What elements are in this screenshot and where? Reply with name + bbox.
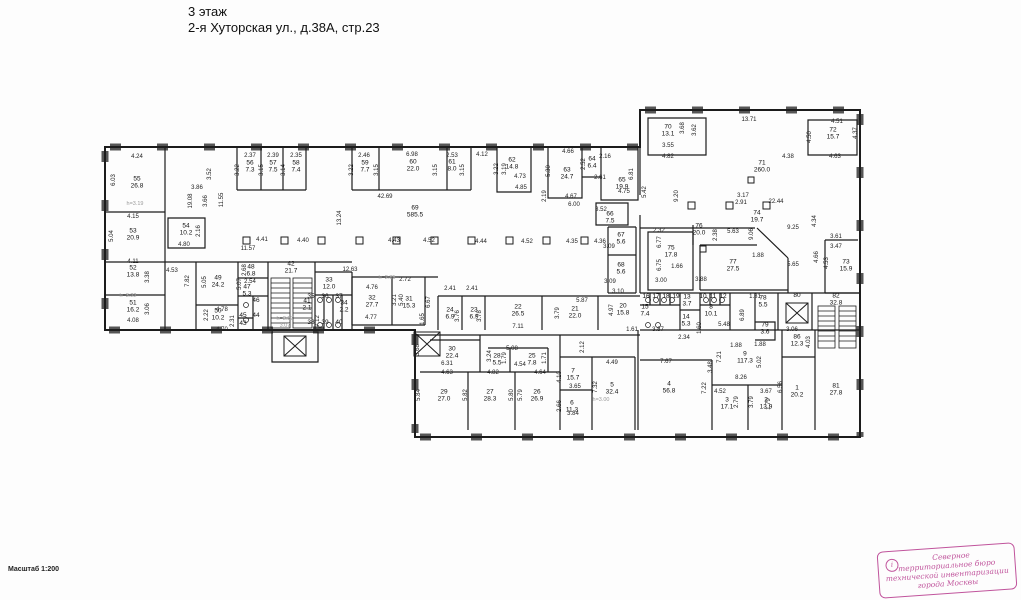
dimension-label: 7.67 (660, 359, 672, 365)
dimension-label: 4.70 (216, 327, 228, 333)
dimension-label: 3.88 (695, 277, 707, 283)
room-label: 35 (307, 294, 314, 301)
dimension-label: 4.85 (515, 185, 527, 191)
room-label: 3227.7 (366, 296, 379, 309)
dimension-label: 4.52 (714, 389, 726, 395)
room-label: 6324.7 (561, 168, 574, 181)
dimension-label: 5.63 (727, 229, 739, 235)
dimension-label: 1.61 (626, 327, 638, 333)
room-label: 5213.8 (127, 266, 140, 279)
dimension-label: 5.42 (642, 186, 648, 198)
dimension-label: 3.22 (349, 164, 355, 176)
dimension-label: 6.67 (426, 296, 432, 308)
room-label: 246.9 (445, 308, 454, 321)
dimension-label: 3.47 (830, 244, 842, 250)
dimension-label: 5.87 (576, 298, 588, 304)
room-label: 3022.4 (446, 347, 459, 360)
room-label: 2728.3 (484, 390, 497, 403)
dimension-label: 4.10 (557, 371, 563, 383)
dimension-label: 2.52 (581, 158, 587, 170)
dimension-label: 4.76 (366, 285, 378, 291)
room-label: 16 (642, 294, 649, 301)
height-note: 3.07 (280, 323, 291, 329)
dimension-label: 2.39 (267, 153, 279, 159)
height-note: h=3.27 (277, 316, 294, 322)
dimension-label: 5.84 (416, 389, 422, 401)
dimension-label: 4.78 (216, 307, 228, 313)
dimension-label: 6.89 (740, 309, 746, 321)
dimension-label: 3.66 (203, 195, 209, 207)
dimension-label: 3.68 (415, 344, 421, 356)
floor-plan-page: 3 этаж 2-я Хуторская ул., д.38А, стр.23 (0, 0, 1021, 600)
room-label: 69585.5 (407, 206, 423, 219)
floor-plan-drawing (0, 0, 1021, 600)
room-label: 12 (719, 294, 726, 301)
room-label: 475.3 (242, 285, 251, 298)
room-label: 9117.3 (737, 352, 753, 365)
room-label: 618.0 (447, 160, 456, 173)
dimension-label: 3.65 (569, 384, 581, 390)
dimension-label: 3.84 (567, 411, 579, 417)
room-label: 2927.0 (438, 390, 451, 403)
dimension-label: 3.87 (652, 327, 664, 333)
dimension-label: 4.77 (365, 315, 377, 321)
dimension-label: 4.53 (166, 268, 178, 274)
room-label: 810.1 (705, 305, 718, 318)
room-label: 412.1 (302, 299, 311, 312)
dimension-label: 4.53 (824, 257, 830, 269)
dimension-label: 2.12 (580, 341, 586, 353)
dimension-label: 2.53 (446, 153, 458, 159)
dimension-label: 5.80 (509, 389, 515, 401)
room-label: 317.1 (721, 398, 734, 411)
dimension-label: 4.43 (388, 238, 400, 244)
room-label: 8612.3 (791, 335, 804, 348)
dimension-label: 1.79 (502, 352, 508, 364)
room-label: 19 (672, 294, 679, 301)
dimension-label: 6.98 (406, 152, 418, 158)
room-label: 36 (321, 294, 328, 301)
room-label: 7215.7 (827, 128, 840, 141)
room-label: 646.4 (587, 157, 596, 170)
dimension-label: 5.30 (546, 165, 552, 177)
dimension-label: 4.38 (782, 154, 794, 160)
dimension-label: 3.62 (692, 124, 698, 136)
room-label: 145.3 (681, 315, 690, 328)
dimension-label: 3.79 (749, 396, 755, 408)
dimension-label: 3.78 (477, 310, 483, 322)
dimension-label: 3.15 (374, 164, 380, 176)
dimension-label: 5.48 (718, 322, 730, 328)
dimension-label: 3.15 (460, 164, 466, 176)
room-label: 17 (652, 294, 659, 301)
dimension-label: 3.00 (655, 278, 667, 284)
dimension-label: 3.79 (555, 307, 561, 319)
height-note: h=3.22 (120, 293, 137, 299)
dimension-label: 4.54 (514, 362, 526, 368)
dimension-label: 5.79 (518, 389, 524, 401)
room-label: 6022.0 (407, 160, 420, 173)
dimension-label: 4.64 (534, 370, 546, 376)
dimension-label: 4.67 (565, 194, 577, 200)
room-label: 7419.7 (751, 211, 764, 224)
bti-stamp: i Северное территориальное бюро техничес… (877, 542, 1018, 599)
room-label: 793.6 (760, 323, 769, 336)
room-label: 597.7 (360, 161, 369, 174)
dimension-label: 4.34 (812, 215, 818, 227)
dimension-label: 3.24 (487, 350, 493, 362)
dimension-label: 3.06 (786, 327, 798, 333)
room-label: 5526.8 (131, 177, 144, 190)
dimension-label: 3.48 (708, 361, 714, 373)
dimension-label: 3.17 (737, 193, 749, 199)
dimension-label: 7.11 (512, 324, 523, 330)
dimension-label: 5.65 (787, 262, 799, 268)
room-label: 157.4 (640, 305, 649, 318)
dimension-label: 4.50 (807, 131, 813, 143)
room-label: 133.7 (682, 295, 691, 308)
room-label: 5320.9 (127, 229, 140, 242)
dimension-label: 1.88 (754, 342, 766, 348)
room-label: 7013.1 (662, 125, 675, 138)
dimension-label: 3.38 (145, 271, 151, 283)
dimension-label: 8.26 (735, 375, 747, 381)
outer-wall (105, 110, 860, 437)
room-label: 46 (252, 298, 259, 305)
dimension-label: 4.73 (514, 174, 526, 180)
dimension-label: 4.75 (618, 189, 630, 195)
dimension-label: 1.79 (766, 398, 772, 410)
dimension-label: 7.22 (702, 382, 708, 394)
dimension-label: 6.31 (441, 361, 453, 367)
dimension-label: 4.03 (806, 336, 812, 348)
dimension-label: 4.35 (566, 239, 578, 245)
dimension-label: 4.44 (475, 239, 487, 245)
room-label: 80 (793, 293, 800, 300)
dimension-label: 4.12 (476, 152, 488, 158)
room-label: 7727.5 (727, 260, 740, 273)
dimension-label: 9.20 (674, 190, 680, 202)
dimension-label: 9.06 (749, 228, 755, 240)
dimension-label: 4.40 (297, 238, 309, 244)
dimension-label: 3.09 (604, 279, 616, 285)
room-label: 577.5 (268, 161, 277, 174)
dimension-label: 1.81 (749, 294, 761, 300)
room-label: 2015.8 (617, 304, 630, 317)
dimension-label: 6.56 (778, 381, 784, 393)
room-label: 43 (239, 321, 246, 328)
dimension-label: 3.10 (612, 289, 624, 295)
dimension-label: 11.57 (241, 246, 256, 252)
dimension-label: 3.15 (433, 164, 439, 176)
dimension-label: 2.22 (204, 309, 210, 321)
room-label: 2122.0 (569, 307, 582, 320)
room-label: 7517.8 (665, 246, 678, 259)
dimension-label: 6.77 (657, 236, 663, 248)
dimension-label: 3.86 (191, 185, 203, 191)
dimension-label: 1.60 (697, 322, 703, 334)
room-label: 7315.9 (840, 260, 853, 273)
dimension-label: 1.88 (730, 343, 742, 349)
dimension-label: 1.71 (542, 352, 548, 364)
dimension-label: 2.41 (444, 286, 456, 292)
room-label: 18 (662, 294, 669, 301)
room-label: 5410.2 (180, 224, 193, 237)
dimension-label: 4.52 (423, 238, 435, 244)
dimension-label: 5.82 (463, 389, 469, 401)
dimension-label: 3.61 (830, 234, 842, 240)
dimension-label: 4.11 (127, 259, 138, 265)
room-label: 39 (321, 320, 328, 327)
room-label: 342.2 (339, 301, 348, 314)
height-note: h=3.19 (127, 201, 144, 207)
dimension-label: 4.15 (127, 214, 139, 220)
dimension-label: 4.37 (853, 127, 859, 139)
room-label: 285.5 (492, 354, 501, 367)
dimension-label: 13.71 (741, 117, 756, 123)
dimension-label: 2.72 (399, 277, 411, 283)
stairs-82 (818, 306, 856, 348)
dimension-label: 4.52 (521, 239, 533, 245)
dimension-label: 1.66 (671, 264, 683, 270)
dimension-label: 3.06 (145, 303, 151, 315)
dimension-label: 2.31 (230, 315, 236, 327)
room-label: 8127.8 (830, 384, 843, 397)
dimension-label: 7.12 (315, 315, 321, 327)
dimension-label: 19.08 (188, 193, 194, 208)
dimension-label: 4.63 (829, 154, 841, 160)
dimension-label: 1.65 (420, 313, 426, 325)
dimension-label: 2.19 (542, 190, 548, 202)
dimension-label: 4.63 (441, 370, 453, 376)
room-label: 257.8 (527, 354, 536, 367)
dimension-label: 2.41 (466, 286, 478, 292)
dimension-label: 7.32 (593, 381, 599, 393)
dimension-label: 2.38 (713, 229, 719, 241)
room-label: 3312.0 (323, 278, 336, 291)
dimension-label: 2.54 (244, 279, 256, 285)
room-label: 8232.8 (830, 294, 843, 307)
dimension-label: 4.97 (609, 304, 615, 316)
dimension-label: 5.04 (109, 230, 115, 242)
dimension-label: 3.55 (662, 143, 674, 149)
dimension-label: 3.14 (281, 164, 287, 176)
room-label: 37 (335, 294, 342, 301)
room-label: 456.8 (663, 382, 676, 395)
dimension-label: 6.03 (111, 174, 117, 186)
dimension-label: 4.82 (487, 370, 499, 376)
dimension-label: 3.19 (502, 163, 508, 175)
dimension-label: 2.91 (735, 200, 747, 206)
room-label: 4221.7 (285, 262, 298, 275)
room-label: 11 (710, 294, 717, 301)
room-label: 10 (699, 294, 706, 301)
dimension-label: 2.16 (196, 225, 202, 237)
dimension-label: 3.21 (392, 294, 398, 306)
dimension-label: 3.09 (603, 244, 615, 250)
scale-note: Масштаб 1:200 (8, 566, 59, 573)
room-label: 120.2 (791, 386, 804, 399)
room-label: 532.4 (606, 383, 619, 396)
room-label: 71260.0 (754, 161, 770, 174)
dimension-label: 3.76 (455, 310, 461, 322)
height-note: h=3.00 (593, 397, 610, 403)
dimension-label: 2.46 (358, 153, 370, 159)
room-label: 667.5 (605, 212, 614, 225)
dimension-label: 5.40 (399, 294, 405, 306)
dimension-label: 11.55 (219, 193, 225, 208)
dimension-label: 3.22 (494, 163, 500, 175)
dimension-label: 3.52 (207, 168, 213, 180)
room-label: 7620.0 (693, 224, 706, 237)
dimension-label: 4.82 (662, 154, 674, 160)
dimension-label: 4.66 (814, 251, 820, 263)
dimension-label: 6.00 (568, 202, 580, 208)
dimension-label: 22.44 (768, 199, 783, 205)
dimension-label: 6.81 (629, 168, 635, 180)
room-label: 38 (307, 320, 314, 327)
dimension-label: 2.34 (678, 335, 690, 341)
room-label: 44 (252, 313, 259, 320)
room-label: 2626.9 (531, 390, 544, 403)
dimension-label: 3.22 (235, 164, 241, 176)
dimension-label: 1.88 (752, 253, 764, 259)
room-label: 567.3 (245, 161, 254, 174)
dimension-label: 3.15 (259, 164, 265, 176)
dimension-label: 4.80 (178, 242, 190, 248)
dimension-label: 7.82 (185, 275, 191, 287)
dimension-label: 9.25 (787, 225, 799, 231)
dimension-label: 2.32 (653, 228, 665, 234)
dimension-label: 2.79 (734, 396, 740, 408)
dimension-label: 6.75 (657, 259, 663, 271)
dimension-label: 2.68 (242, 264, 248, 276)
room-label: 675.6 (616, 233, 625, 246)
dimension-label: 3.68 (680, 122, 686, 134)
dimension-label: 2.37 (244, 153, 256, 159)
dimension-label: 5.07 (237, 278, 243, 290)
room-label: 685.6 (616, 263, 625, 276)
dimension-label: 5.05 (202, 276, 208, 288)
dimension-label: 3.67 (760, 389, 772, 395)
dimension-label: 4.24 (131, 154, 143, 160)
room-label: 2226.5 (512, 305, 525, 318)
room-label: 40 (335, 320, 342, 327)
dimension-label: 5.02 (757, 356, 763, 368)
dimension-label: 4.51 (831, 119, 843, 125)
room-label: 5116.2 (127, 301, 140, 314)
dimension-label: 4.66 (562, 149, 574, 155)
dimension-label: 3.52 (595, 207, 607, 213)
dimension-label: 2.61 (594, 175, 606, 181)
room-label: 4924.2 (212, 276, 225, 289)
dimension-label: 7.21 (717, 351, 723, 363)
room-label: 715.7 (567, 369, 580, 382)
dimension-label: 2.35 (290, 153, 302, 159)
dimension-label: 12.63 (342, 267, 357, 273)
dimension-label: 4.41 (256, 237, 268, 243)
room-label: 587.4 (291, 161, 300, 174)
dimension-label: 4.49 (606, 360, 618, 366)
dimension-label: 4.08 (127, 318, 139, 324)
dimension-label: 2.66 (557, 400, 563, 412)
room-label: 45 (239, 313, 246, 320)
dimension-label: 13.24 (337, 210, 343, 225)
height-note: h=2.85 (379, 275, 396, 281)
dimension-label: 2.16 (599, 154, 611, 160)
columns (243, 177, 770, 252)
dimension-label: 42.69 (377, 194, 392, 200)
